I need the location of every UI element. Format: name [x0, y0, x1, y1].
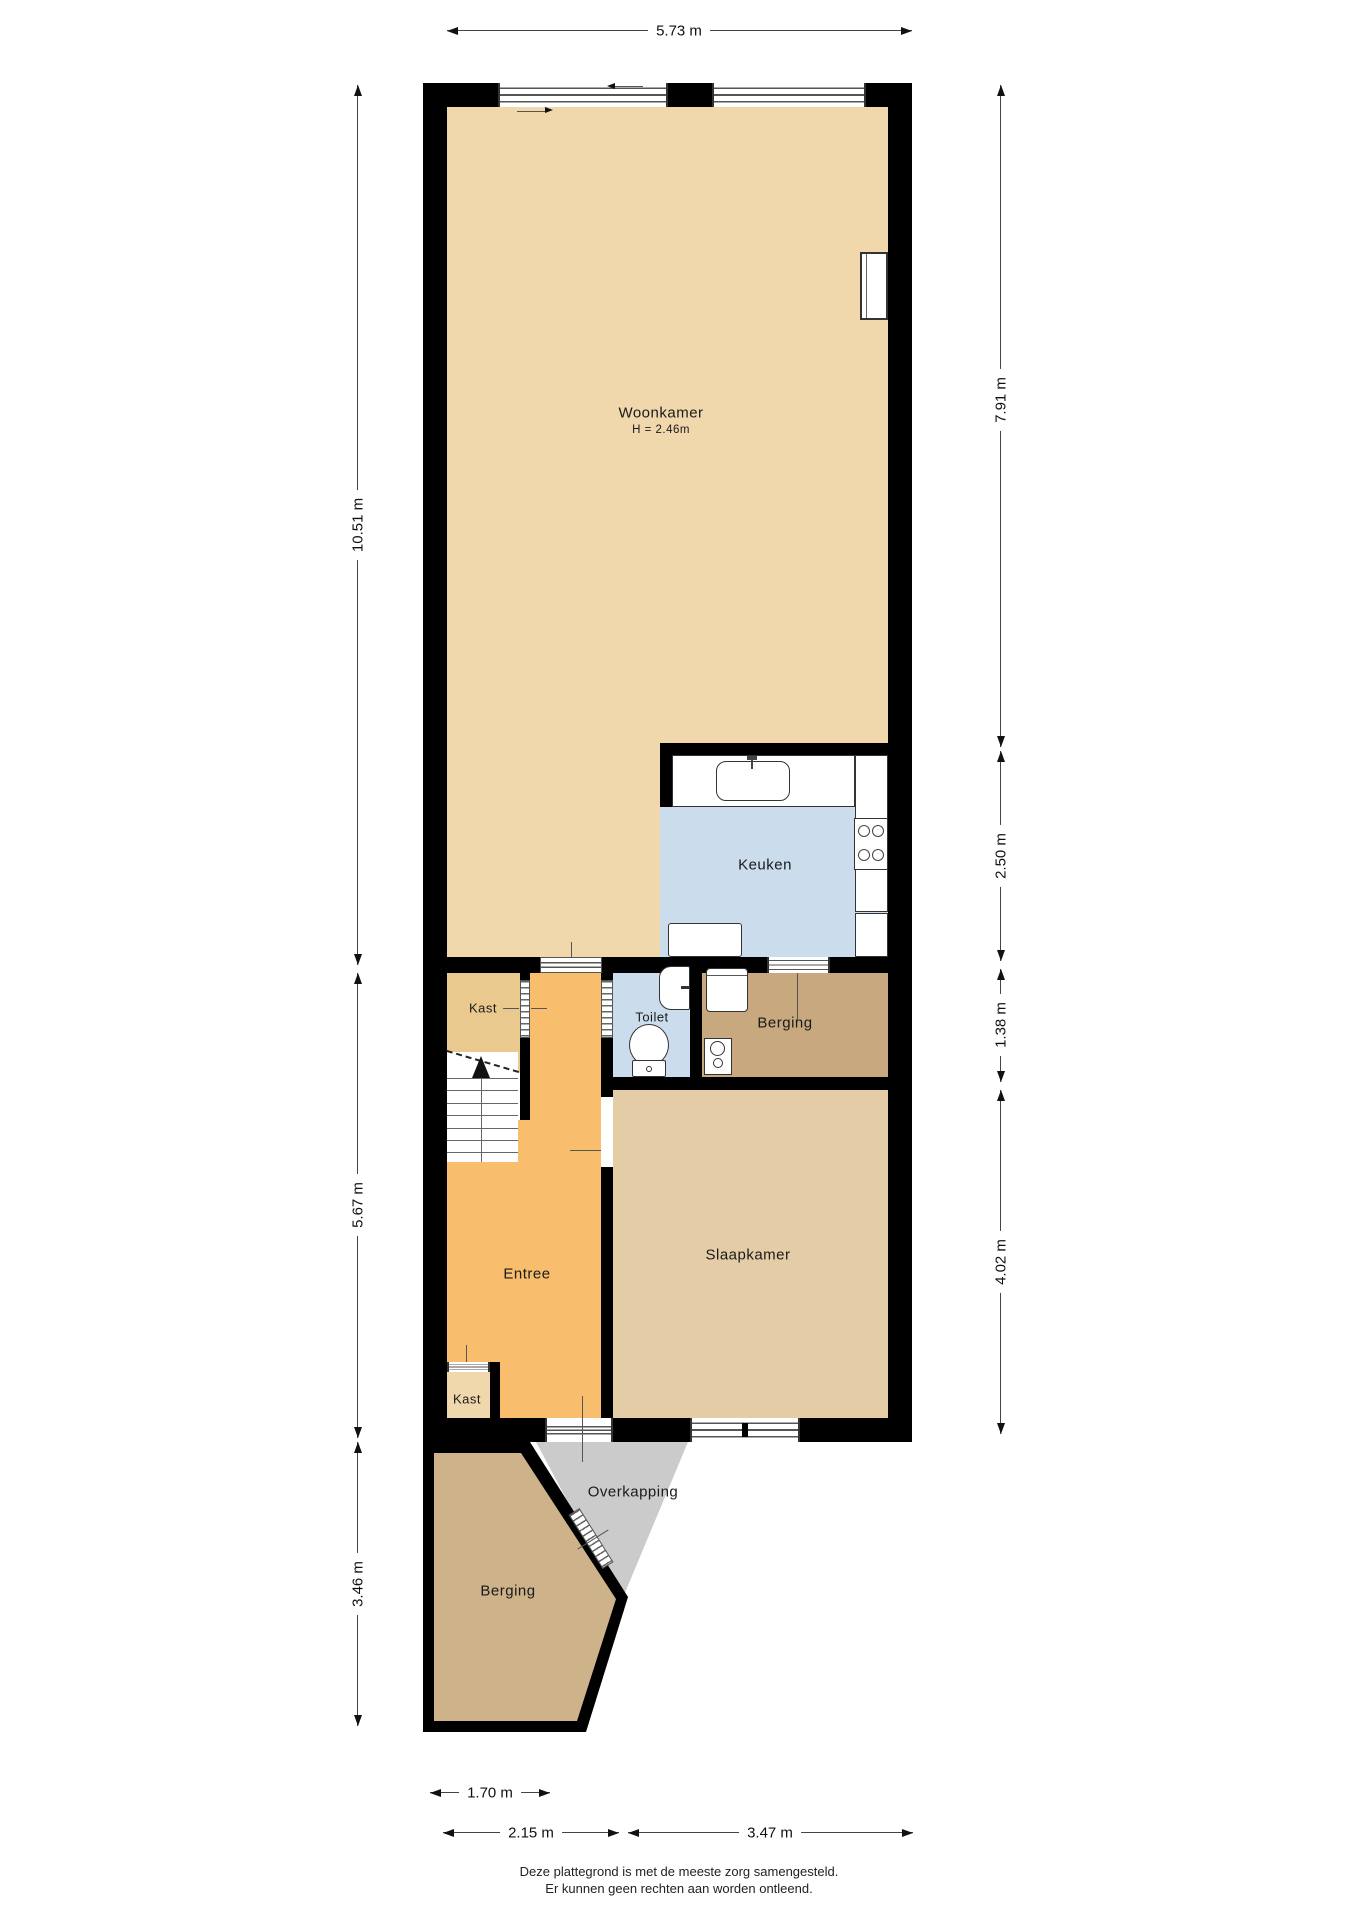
stair-tread	[447, 1115, 518, 1116]
room-height-label: H = 2.46m	[632, 424, 690, 436]
dim-label-left-3: 3.46 m	[349, 1553, 368, 1615]
dim-arrow	[354, 1427, 362, 1438]
room-label-berging-outer: Berging	[480, 1583, 535, 1600]
dim-arrow	[997, 1090, 1005, 1101]
kitchen-cabinet	[855, 913, 888, 957]
stair-tread	[447, 1103, 518, 1104]
stair-tread	[447, 1152, 518, 1153]
window-tick	[797, 973, 798, 1020]
window-keuken-berging	[767, 957, 830, 973]
slide-arrow-line	[517, 111, 545, 112]
room-label-entree: Entree	[503, 1266, 550, 1283]
burner-icon	[872, 849, 884, 861]
room-label-berging-inner: Berging	[757, 1015, 812, 1032]
dim-label-right-4: 4.02 m	[992, 1231, 1011, 1293]
wall-toilet-berging	[690, 973, 702, 1090]
window-top-2	[712, 83, 866, 107]
burner-icon	[858, 849, 870, 861]
boiler-dial-icon	[713, 1058, 723, 1068]
wall-keuken-top	[660, 743, 888, 755]
room-label-woonkamer: Woonkamer	[618, 405, 703, 422]
door-tick	[531, 1008, 547, 1009]
room-label-overkapping: Overkapping	[588, 1484, 679, 1501]
kitchen-appliance	[668, 923, 742, 957]
washing-machine	[706, 968, 748, 1012]
wall-right	[888, 107, 912, 1438]
wall-keuken-left	[660, 743, 672, 807]
room-label-kast-lower: Kast	[453, 1392, 481, 1407]
room-label-keuken: Keuken	[738, 857, 792, 874]
stove	[854, 818, 888, 870]
dim-arrow	[997, 950, 1005, 961]
wall-front	[800, 1418, 912, 1442]
boiler-dial-icon	[710, 1041, 725, 1056]
faucet-icon	[751, 760, 753, 769]
wall-front	[423, 1418, 545, 1442]
room-label-kast-upper: Kast	[469, 1001, 497, 1016]
door-woonkamer-entree	[540, 957, 602, 973]
boiler	[704, 1038, 732, 1075]
floorplan-canvas: Woonkamer H = 2.46m Keuken Kast Toilet B…	[0, 0, 1358, 1920]
front-door	[545, 1418, 613, 1442]
dim-label-right-1: 7.91 m	[992, 369, 1011, 431]
dim-arrow	[443, 1829, 454, 1837]
dim-arrow	[997, 969, 1005, 980]
dim-arrow	[354, 85, 362, 96]
wall-front	[613, 1418, 690, 1442]
room-label-toilet: Toilet	[635, 1010, 668, 1025]
slide-arrow-line	[615, 86, 643, 87]
door-slaapkamer-opening	[601, 1097, 613, 1167]
entree-floor	[530, 973, 601, 1120]
dim-arrow	[354, 1442, 362, 1453]
wall-entree-right	[601, 973, 613, 1418]
kast-lower-tick	[466, 1345, 467, 1362]
dim-arrow	[902, 1829, 913, 1837]
dim-arrow	[354, 1715, 362, 1726]
door-tick	[503, 1008, 519, 1009]
dim-label-bottom-2: 2.15 m	[500, 1824, 562, 1843]
wall-top-left	[423, 83, 498, 107]
dim-arrow	[430, 1789, 441, 1797]
front-door-swing	[582, 1396, 583, 1462]
stair-tread	[447, 1078, 518, 1079]
wall-kast-lower	[490, 1362, 500, 1418]
dim-arrow	[997, 1071, 1005, 1082]
wall-service-bottom	[601, 1077, 888, 1090]
stair-tread	[447, 1128, 518, 1129]
stair-direction-arrow	[472, 1056, 490, 1078]
burner-icon	[858, 825, 870, 837]
dim-arrow	[354, 954, 362, 965]
disclaimer-line-1: Deze plattegrond is met de meeste zorg s…	[0, 1864, 1358, 1879]
dim-arrow	[608, 1829, 619, 1837]
dim-label-left-1: 10.51 m	[349, 490, 368, 560]
kast-lower-sliding-door	[447, 1362, 490, 1372]
door-tick	[570, 1150, 601, 1151]
kitchen-sink	[716, 761, 790, 801]
wall-top-pillar	[668, 83, 712, 107]
disclaimer-line-2: Er kunnen geen rechten aan worden ontlee…	[0, 1881, 1358, 1896]
wall-divider	[830, 957, 888, 973]
wall-divider	[423, 957, 540, 973]
slide-arrow-left-icon	[607, 83, 615, 89]
slide-arrow-right-icon	[545, 107, 553, 113]
room-label-slaapkamer: Slaapkamer	[705, 1247, 790, 1264]
door-kast-upper	[520, 980, 530, 1038]
dim-arrow	[539, 1789, 550, 1797]
wall-left	[423, 107, 447, 1438]
radiator	[860, 252, 888, 320]
basin-tap-icon	[681, 986, 690, 989]
burner-icon	[872, 825, 884, 837]
dim-label-right-3: 1.38 m	[992, 994, 1011, 1056]
door-toilet	[601, 980, 613, 1038]
stair-tread	[447, 1090, 518, 1091]
dim-label-right-2: 2.50 m	[992, 825, 1011, 887]
dim-label-bottom-3: 3.47 m	[739, 1824, 801, 1843]
door-swing-tick	[571, 942, 572, 957]
dim-arrow	[901, 27, 912, 35]
dim-arrow	[997, 751, 1005, 762]
dim-arrow	[997, 85, 1005, 96]
flush-button-icon	[646, 1066, 652, 1072]
dim-arrow	[628, 1829, 639, 1837]
dim-label-top: 5.73 m	[648, 22, 710, 41]
dim-label-bottom-1: 1.70 m	[459, 1784, 521, 1803]
dim-arrow	[354, 973, 362, 984]
dim-arrow	[997, 1423, 1005, 1434]
stair-tread	[447, 1140, 518, 1141]
dim-arrow	[447, 27, 458, 35]
window-mullion	[742, 1423, 748, 1437]
entree-floor	[518, 1120, 601, 1162]
dim-arrow	[997, 736, 1005, 747]
dim-label-left-2: 5.67 m	[349, 1174, 368, 1236]
wall-top-right	[866, 83, 912, 107]
